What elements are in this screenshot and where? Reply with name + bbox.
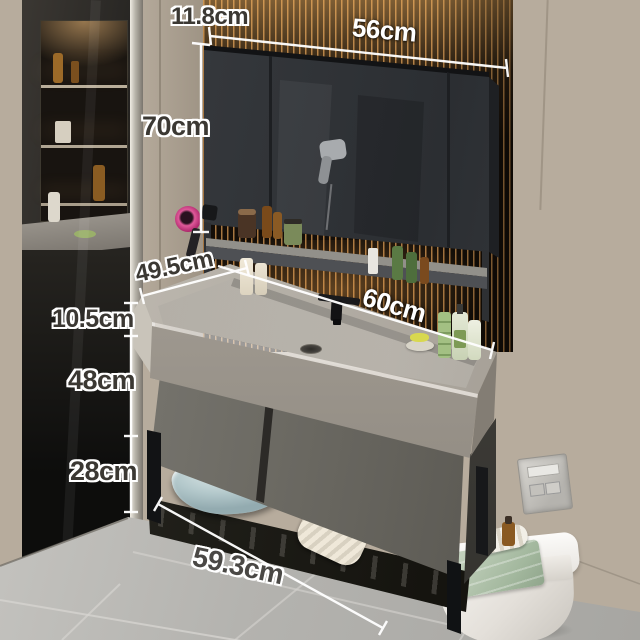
flush-button-left [529,483,545,497]
niche-box-white [55,121,71,143]
dim-label-mirror-height: 70cm [142,111,209,142]
hairdryer-wall-mount [201,204,218,221]
shelf-bottle-green-1 [392,246,403,280]
flush-button-right [545,481,561,495]
niche-shelf-1 [41,85,127,88]
lotion-pump-bottle-2 [468,320,481,360]
shelf-tube-white [368,248,378,274]
counter-candle-1 [240,258,253,295]
shelf-bottle-amber-3 [420,257,429,284]
shelf-bottle-amber-2 [273,212,282,239]
soap-bar-yellow [410,333,429,342]
niche-bottle-amber [53,53,63,83]
bamboo-candle [438,312,451,358]
lotion-pump-bottle-1 [452,312,468,360]
toilet-flush-plate [517,453,573,515]
shelf-jar-brown-lid [238,209,256,215]
glass-bottle-white [48,192,60,222]
sink-drain [300,344,322,354]
niche-bottle-amber-2 [71,61,79,83]
faucet-tip [333,319,341,325]
flush-plate-window [527,463,560,478]
shelf-jar-green [284,222,302,245]
dim-label-mirror-width: 56cm [351,12,418,49]
niche-flask-amber [93,165,105,201]
shelf-bottle-amber-1 [262,206,272,238]
dim-label-cabinet-height: 48cm [68,365,135,396]
dim-label-counter-height: 10.5cm [52,305,134,334]
shelf-jar-green-lid [284,219,302,224]
amber-bottle-on-toilet [502,522,515,546]
lotion-pump-top-1 [457,304,463,314]
dim-label-clearance-height: 28cm [70,456,137,487]
shelf-jar-brown [238,212,256,238]
lotion-label-1 [454,330,466,348]
shelf-bottle-green-2 [406,252,417,283]
amber-bottle-cap [505,516,512,524]
counter-candle-2 [255,263,267,295]
annotated-bathroom-photo: 11.8cm 56cm 70cm 49.5cm 60cm 10.5cm 48cm… [0,0,640,640]
dim-label-mirror-depth: 11.8cm [171,3,248,31]
